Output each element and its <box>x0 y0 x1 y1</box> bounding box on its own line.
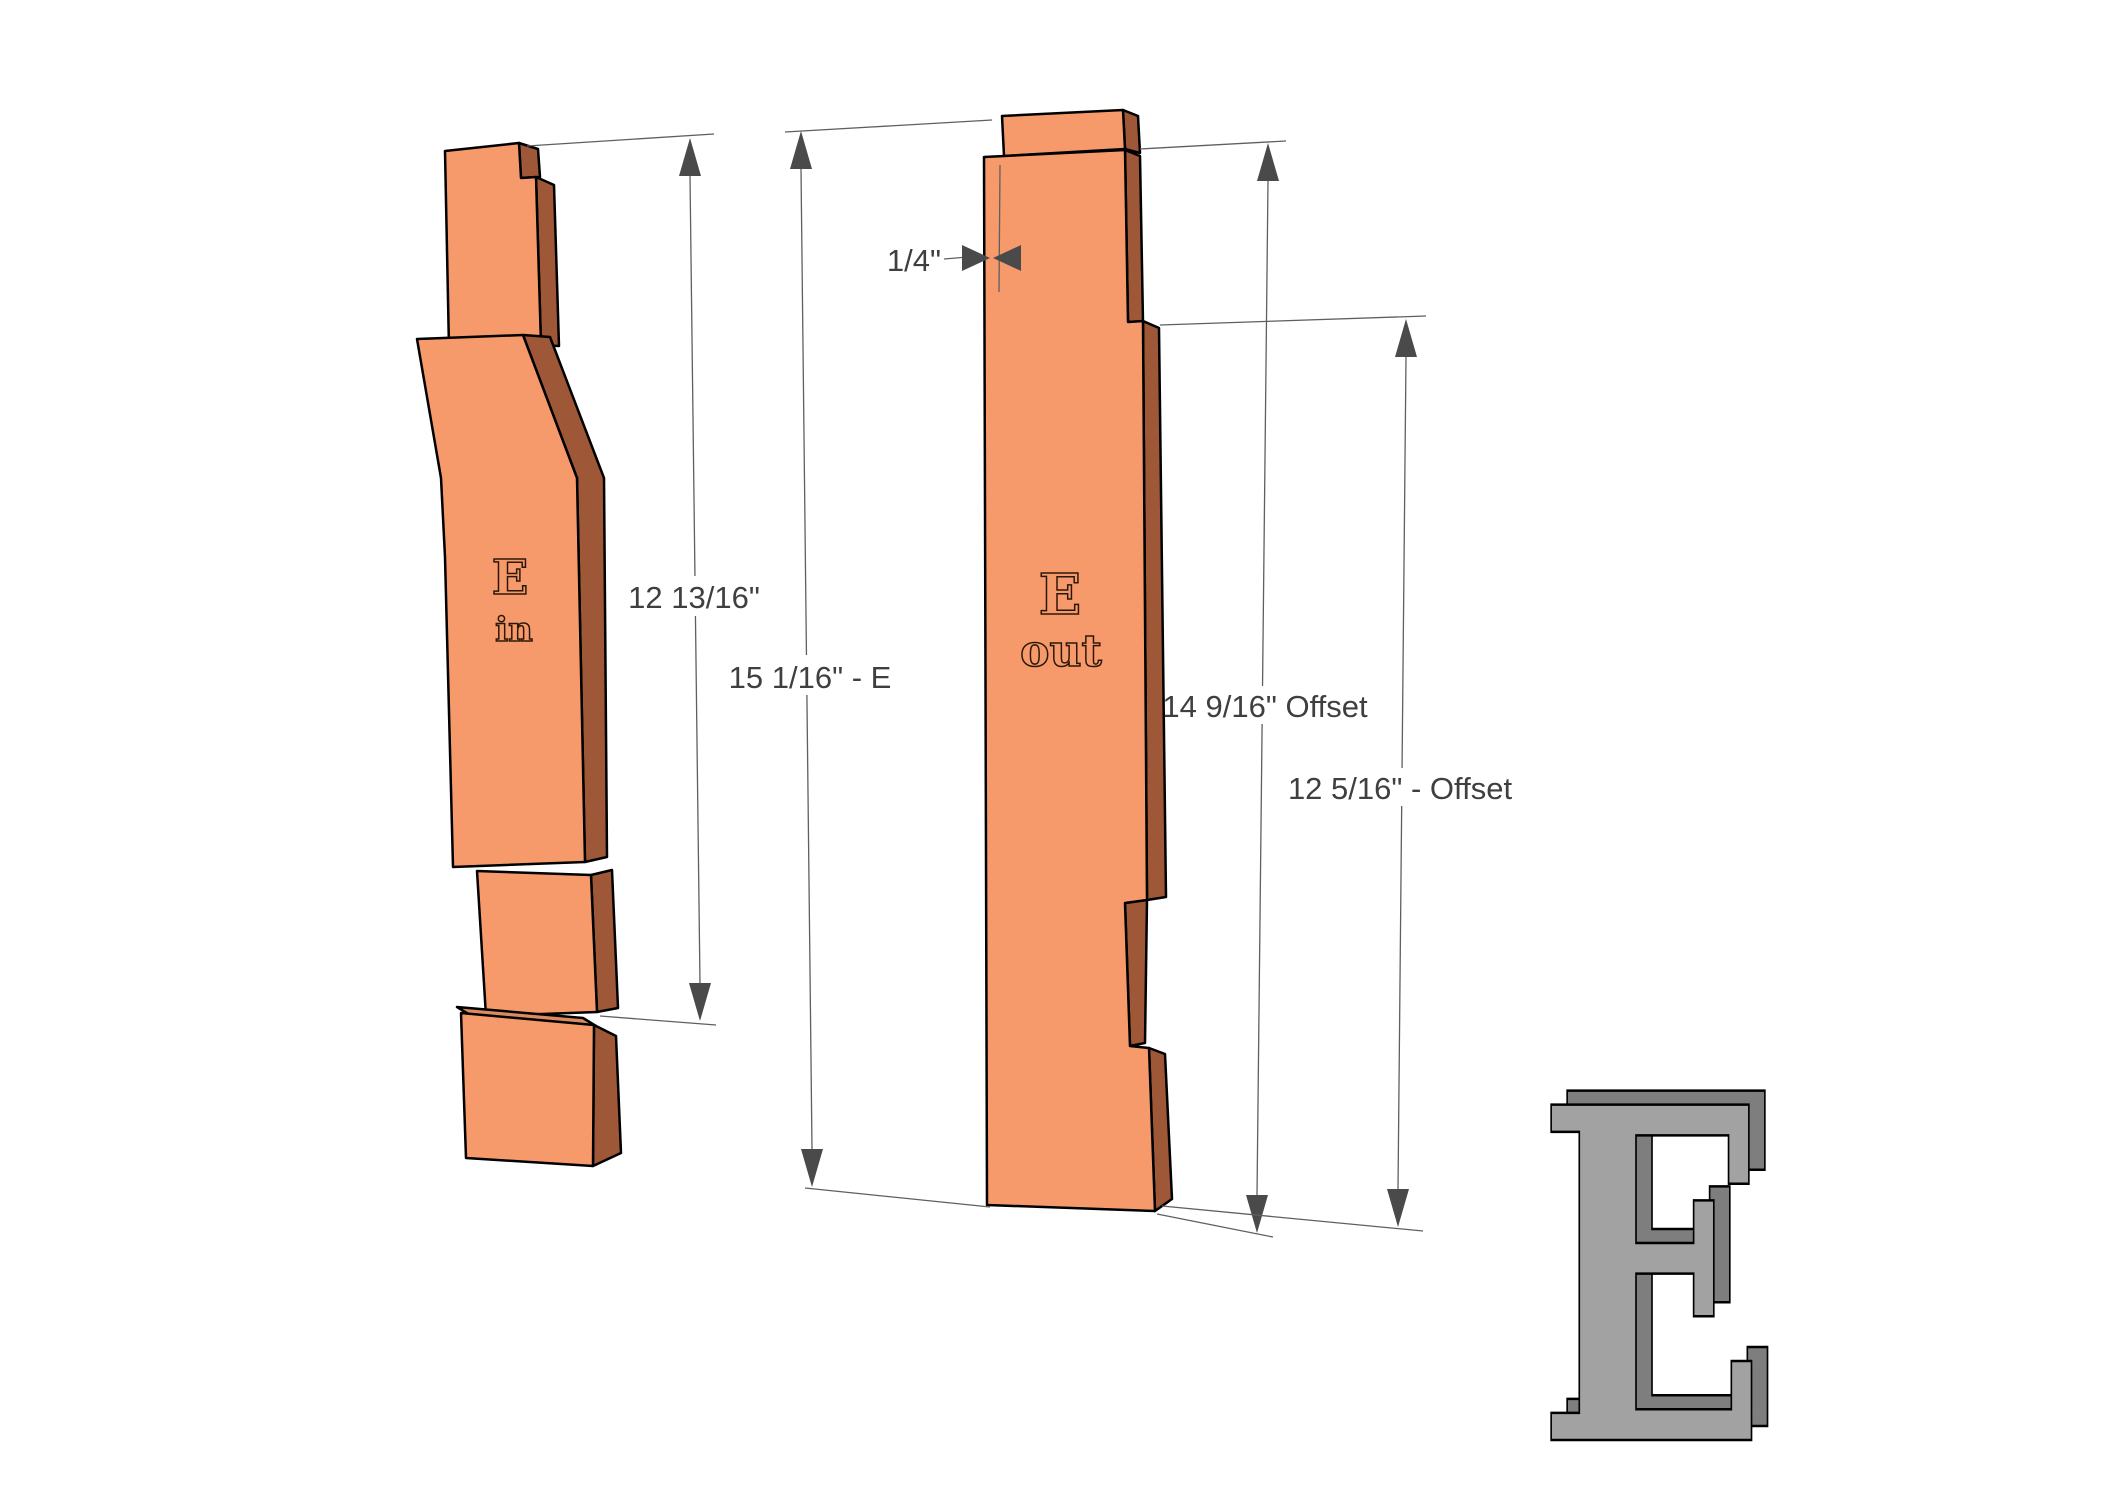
extension-line <box>527 134 714 146</box>
arrow-down-icon <box>801 1149 823 1187</box>
part-e-in-lower-face <box>477 871 597 1016</box>
letter-e-3d[interactable]: E E <box>1537 995 1783 1496</box>
extension-line <box>785 120 992 132</box>
dim-label-part-in-height: 12 13/16" <box>628 580 760 615</box>
dim-label-tab-inset: 1/4" <box>887 243 941 278</box>
part-e-out-engraving-word: out <box>1020 626 1102 677</box>
dimension-offset-upper[interactable]: 14 9/16" Offset <box>1140 141 1368 1237</box>
dim-label-offset-lower: 12 5/16" - Offset <box>1288 771 1513 806</box>
arrow-up-icon <box>1257 143 1279 181</box>
drawing-canvas: E in E out 12 13/16" 15 1/16" - E <box>0 0 2117 1496</box>
extension-line <box>1160 316 1426 325</box>
model-drawing: E in E out 12 13/16" 15 1/16" - E <box>0 0 2117 1496</box>
part-e-in-foot-face <box>461 1013 594 1166</box>
arrow-up-icon <box>679 138 701 176</box>
arrow-down-icon <box>1387 1189 1409 1227</box>
extension-line <box>805 1188 990 1207</box>
part-e-in-engraving-letter: E <box>492 550 529 606</box>
arrow-up-icon <box>790 131 812 169</box>
dimension-offset-lower[interactable]: 12 5/16" - Offset <box>1160 316 1512 1231</box>
dimension-part-out-total[interactable]: 15 1/16" - E <box>729 120 992 1207</box>
arrow-down-icon <box>689 983 711 1021</box>
extension-line <box>600 1016 716 1025</box>
part-e-in-engraving-word: in <box>495 610 533 650</box>
part-e-out-tab-face <box>1002 110 1125 156</box>
dim-label-part-out-total: 15 1/16" - E <box>729 660 892 695</box>
extension-line <box>1162 1206 1423 1231</box>
part-e-out-engraving-letter: E <box>1039 562 1082 628</box>
arrow-up-icon <box>1395 319 1417 357</box>
dim-label-offset-upper: 14 9/16" Offset <box>1162 689 1368 724</box>
part-e-out[interactable]: E out <box>984 110 1172 1211</box>
part-e-in[interactable]: E in <box>417 143 621 1166</box>
extension-line <box>1140 141 1286 149</box>
letter-e-3d-face: E <box>1537 1009 1767 1496</box>
part-e-in-foot-side <box>593 1025 621 1166</box>
part-e-in-tab-notch-side <box>519 143 540 178</box>
